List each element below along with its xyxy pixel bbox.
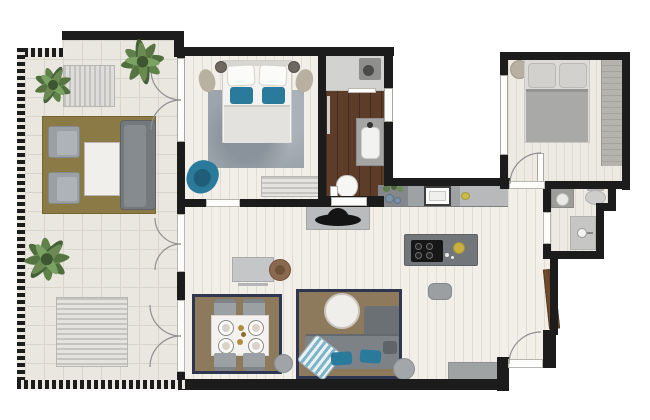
pouf	[393, 358, 415, 380]
desk	[232, 257, 274, 282]
terrace-door-threshold	[177, 300, 185, 372]
burner	[415, 252, 422, 259]
desk-bench	[238, 283, 268, 286]
shower-head	[363, 65, 374, 76]
entry-corner-wall	[543, 330, 556, 368]
burner	[426, 252, 433, 259]
center-dish	[241, 332, 246, 337]
small-dish	[451, 256, 454, 259]
burner	[426, 243, 433, 250]
terrace-top-wall	[62, 31, 184, 40]
round-coffee-table	[324, 293, 360, 329]
outside-patch	[17, 31, 62, 48]
shower-handle	[587, 232, 593, 234]
outdoor-armchair	[48, 172, 80, 204]
outdoor-sofa	[120, 120, 156, 210]
terrace-railing-left	[17, 48, 25, 389]
toilet	[336, 175, 358, 198]
sink	[361, 127, 380, 159]
plate-center	[222, 324, 230, 332]
gray-cushion	[383, 341, 397, 354]
plate	[248, 338, 264, 354]
oven-door	[429, 191, 446, 201]
cooktop	[411, 240, 443, 262]
sofa-cushions	[124, 125, 146, 207]
garden-bench	[63, 65, 115, 107]
bathroom1-left-wall	[318, 47, 326, 207]
duvet	[526, 89, 588, 142]
kitchen-top-wall	[384, 178, 510, 186]
faucet	[367, 122, 373, 128]
bedroom1-bottom-wall	[177, 199, 326, 207]
towel-rail	[327, 96, 330, 134]
outdoor-armchair	[48, 126, 80, 158]
bathroom1-window	[384, 88, 393, 122]
sink-bowl	[556, 193, 569, 206]
plate-center	[222, 342, 230, 350]
stool-center	[275, 265, 285, 275]
desk-stool	[269, 259, 291, 281]
shower-drain	[577, 228, 587, 238]
hall-right-wall	[550, 255, 558, 335]
double-bed	[222, 60, 292, 143]
bedroom2-top-wall	[500, 52, 630, 60]
storage-bench	[261, 176, 320, 197]
small-dish	[445, 253, 449, 257]
center-dish	[237, 339, 243, 345]
dining-chair	[214, 353, 236, 371]
lemon-bowl	[461, 192, 470, 200]
plate-center	[252, 342, 260, 350]
outdoor-coffee-table	[84, 142, 120, 196]
bathroom2-door-threshold	[543, 212, 551, 244]
nightstand	[288, 61, 300, 73]
kitchen-island	[404, 234, 478, 266]
vanity	[356, 118, 384, 166]
armchair-cushion	[57, 131, 77, 155]
floor-plan	[0, 0, 650, 420]
sink-basin	[394, 197, 401, 204]
plate	[218, 338, 234, 354]
armchair-seat	[191, 167, 213, 189]
pillow	[528, 63, 556, 88]
pouf	[274, 354, 293, 373]
herb-pot	[397, 186, 403, 192]
bar-stool	[428, 283, 452, 300]
teal-pillow	[230, 87, 253, 104]
dining-table	[211, 315, 269, 356]
teal-cushion	[360, 349, 382, 363]
bedroom2-door-threshold	[509, 181, 545, 189]
wardrobe	[601, 59, 622, 166]
bedroom1-top-wall	[176, 47, 394, 56]
pillow	[258, 64, 287, 86]
pillow	[226, 64, 255, 86]
sink-basin	[385, 194, 394, 203]
bathroom1-door-threshold	[331, 197, 367, 206]
double-bed	[524, 59, 590, 143]
shower	[570, 216, 596, 250]
vanity	[551, 188, 574, 208]
plate	[248, 320, 264, 336]
terrace-railing-bottom	[17, 380, 186, 389]
burner	[415, 243, 422, 250]
bedroom2-door-leaf	[537, 153, 544, 184]
bedroom2-window	[500, 75, 508, 155]
shower-threshold	[348, 88, 376, 93]
teal-cushion	[331, 351, 353, 365]
plate-center	[252, 324, 260, 332]
center-dish	[238, 325, 244, 331]
duvet	[224, 105, 290, 143]
terrace-glass-door	[177, 58, 185, 142]
teal-pillow	[262, 87, 285, 104]
terrace-door-threshold	[177, 214, 185, 272]
pillow	[559, 63, 587, 88]
main-bottom-wall	[178, 379, 502, 390]
herb-pot	[383, 185, 390, 192]
oven	[424, 186, 451, 206]
bedroom1-door-threshold	[206, 199, 240, 207]
fruit-bowl	[453, 242, 465, 254]
plate	[218, 320, 234, 336]
entrance-door-leaf	[508, 359, 543, 368]
dining-chair	[243, 353, 265, 371]
bedroom2-right-wall	[622, 52, 630, 190]
armchair-cushion	[57, 177, 77, 201]
sun-lounger	[56, 297, 128, 367]
nightstand	[215, 61, 227, 73]
